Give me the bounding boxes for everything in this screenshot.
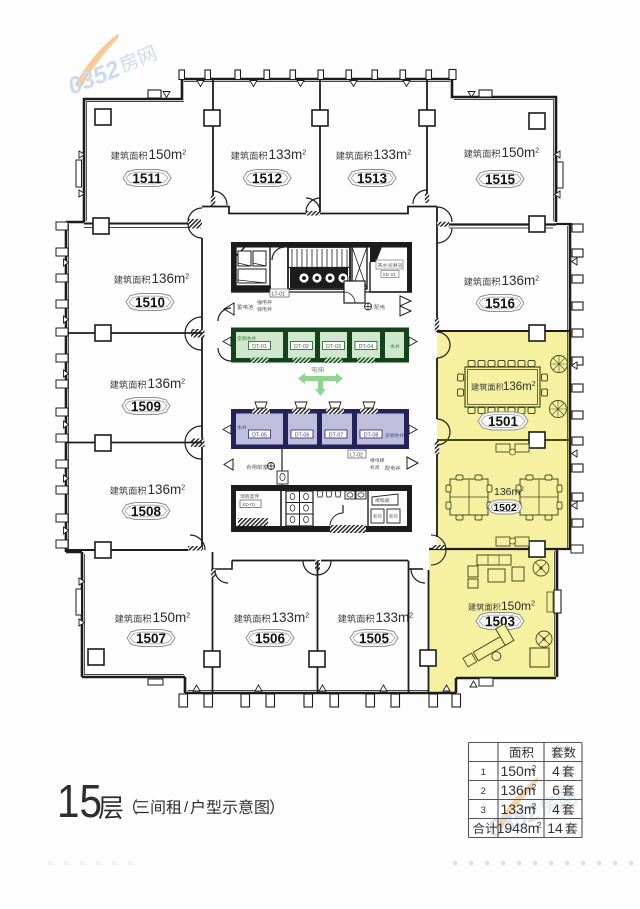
svg-text:133m2: 133m2 [376,610,414,625]
svg-text:2: 2 [532,802,537,811]
svg-text:136m2: 136m2 [494,486,524,498]
svg-text:136m2: 136m2 [152,271,190,286]
svg-text:136m2: 136m2 [148,482,186,497]
svg-text:133m2: 133m2 [272,610,310,625]
svg-text:1508: 1508 [131,504,162,519]
svg-text:1: 1 [481,767,486,778]
svg-text:DT-02: DT-02 [294,344,309,350]
svg-text:1506: 1506 [255,631,286,646]
svg-text:1510: 1510 [135,295,165,310]
svg-text:DT-04: DT-04 [359,344,374,350]
svg-text:136m2: 136m2 [148,376,186,391]
svg-text:3: 3 [481,805,486,816]
svg-text:XD-01: XD-01 [383,272,397,278]
svg-text:14: 14 [547,820,563,836]
svg-text:2: 2 [481,786,486,797]
svg-text:133m: 133m [500,801,535,817]
svg-text:136m2: 136m2 [503,381,536,393]
svg-text:DT-08: DT-08 [364,432,379,438]
svg-text:133m2: 133m2 [374,147,412,162]
svg-text:1511: 1511 [132,171,162,186]
svg-text:DT-01: DT-01 [252,344,267,350]
svg-text:LT-02: LT-02 [350,453,363,459]
svg-text:2: 2 [532,764,537,773]
svg-text:LT-01: LT-01 [272,292,285,298]
svg-text:150m2: 150m2 [153,610,191,625]
svg-text:136m2: 136m2 [502,273,540,288]
svg-text:1516: 1516 [485,296,516,311]
svg-text:2: 2 [537,821,542,830]
svg-text:4: 4 [552,763,560,779]
svg-text:15: 15 [57,777,102,828]
svg-text:1505: 1505 [359,631,390,646]
svg-text:DT-03: DT-03 [326,344,341,350]
svg-text:DT-06: DT-06 [295,432,310,438]
svg-text:XD-01: XD-01 [242,502,256,508]
svg-text:150m2: 150m2 [501,599,535,614]
svg-text:150m: 150m [500,763,535,779]
svg-text:1502: 1502 [493,502,517,514]
svg-text:1509: 1509 [131,399,161,414]
svg-text:4: 4 [552,801,560,817]
svg-text:1515: 1515 [485,172,516,187]
svg-text:1513: 1513 [357,171,388,186]
svg-text:133m2: 133m2 [269,147,307,162]
svg-text:1501: 1501 [488,414,519,429]
svg-text:150m2: 150m2 [502,145,540,160]
svg-text:2: 2 [532,783,537,792]
svg-text:1948m: 1948m [497,820,540,836]
svg-text:136m: 136m [500,782,535,798]
svg-text:6: 6 [552,782,560,798]
svg-text:1507: 1507 [136,631,166,646]
svg-text:DT-05: DT-05 [252,432,267,438]
svg-text:DT-07: DT-07 [329,432,344,438]
svg-text:1512: 1512 [252,171,282,186]
svg-text:150m2: 150m2 [149,147,187,162]
